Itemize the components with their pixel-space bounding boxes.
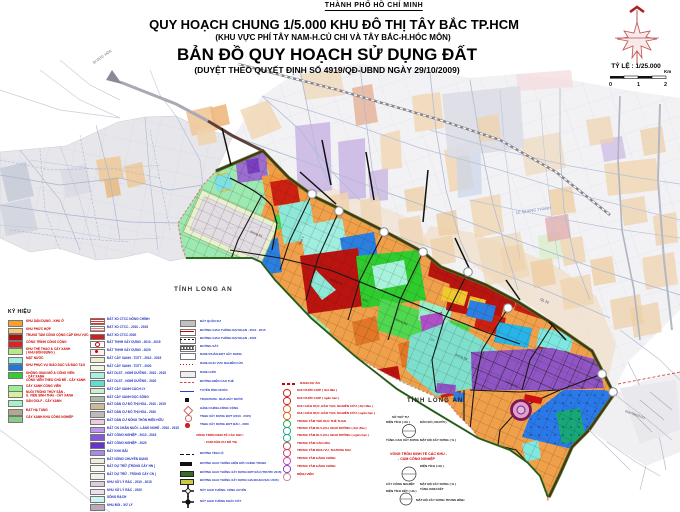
- svg-text:DIỆN TÍCH ( HA ): DIỆN TÍCH ( HA ): [420, 463, 444, 468]
- svg-text:MẬT ĐỘ XÂY DỰNG ( % ): MẬT ĐỘ XÂY DỰNG ( % ): [420, 481, 456, 486]
- svg-text:1: 1: [637, 82, 640, 88]
- svg-text:DIỆN TÍCH KẾT ( HA ): DIỆN TÍCH KẾT ( HA ): [386, 488, 417, 493]
- svg-text:CÂY CÔNG NGHIỆP: CÂY CÔNG NGHIỆP: [386, 481, 414, 486]
- svg-text:TẦNG CAO XÂY DỰNG: TẦNG CAO XÂY DỰNG: [386, 437, 420, 442]
- svg-text:ĐI ĐỨC HÒA: ĐI ĐỨC HÒA: [92, 48, 113, 65]
- svg-text:SỐ THỨ TỰ: SỐ THỨ TỰ: [392, 414, 409, 419]
- svg-text:TẦNG KINH KẾT: TẦNG KINH KẾT: [420, 486, 444, 491]
- svg-text:DIỆN TÍCH ( HA ): DIỆN TÍCH ( HA ): [386, 419, 410, 424]
- svg-text:2: 2: [664, 82, 667, 88]
- svg-text:VÒNG TRÒN KINH TẾ CÁC KHU -: VÒNG TRÒN KINH TẾ CÁC KHU -: [390, 451, 448, 456]
- svg-text:DÂN SỐ ( NGƯỜI ): DÂN SỐ ( NGƯỜI ): [420, 419, 447, 424]
- svg-text:- CỤM CÔNG NGHIỆP: - CỤM CÔNG NGHIỆP: [398, 456, 436, 461]
- svg-text:MẬT ĐỘ XÂY DỰNG ( % ): MẬT ĐỘ XÂY DỰNG ( % ): [420, 437, 456, 442]
- svg-text:0: 0: [609, 82, 612, 88]
- svg-text:MẬT ĐỘ XÂY DỰNG TRUNG BÌNH: MẬT ĐỘ XÂY DỰNG TRUNG BÌNH: [416, 497, 464, 502]
